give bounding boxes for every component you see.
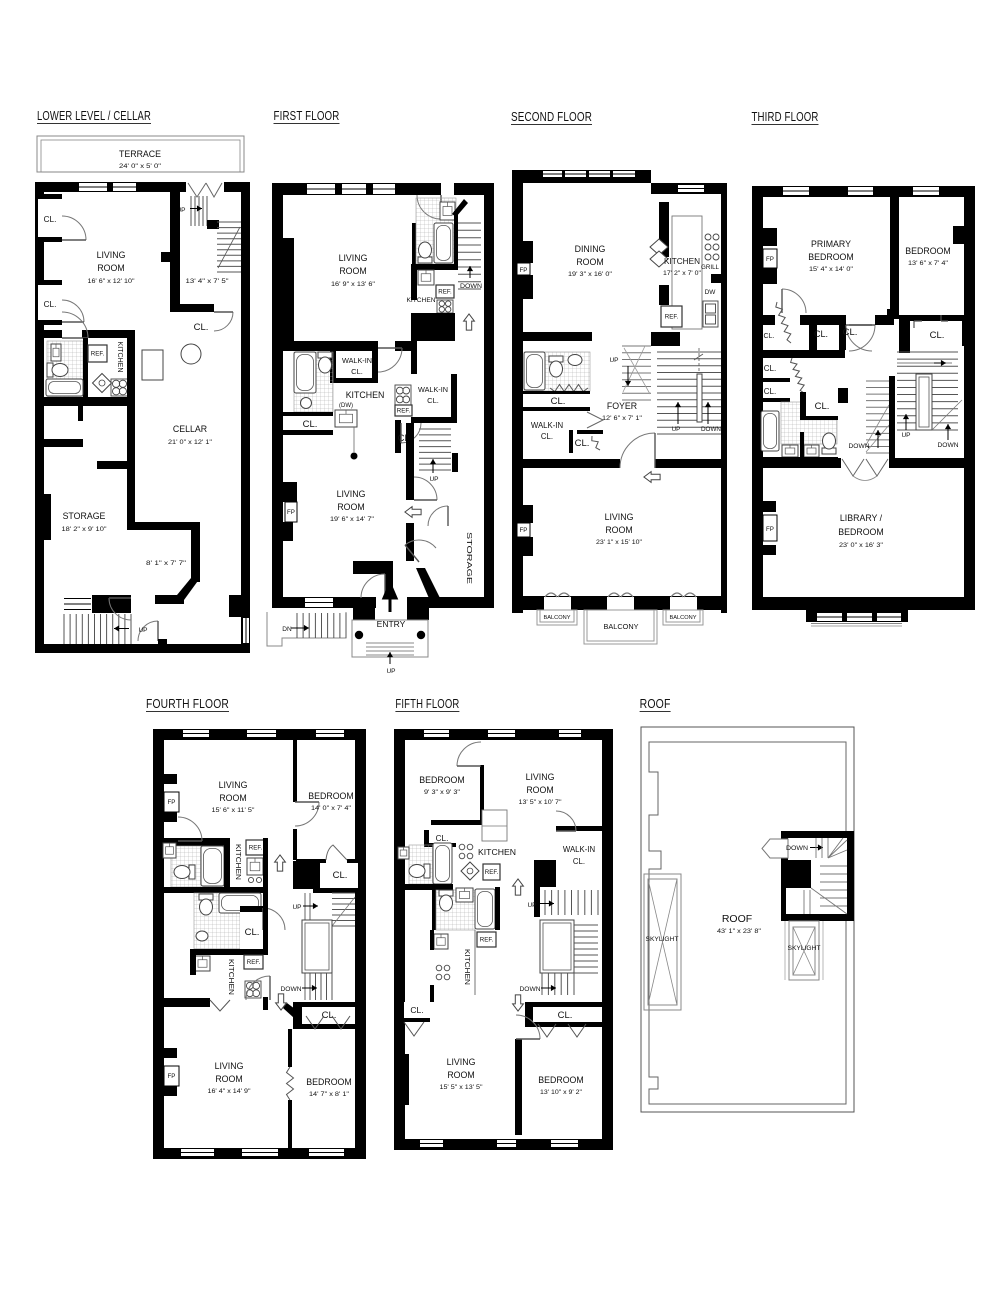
svg-text:13' 10" x 9' 2": 13' 10" x 9' 2" — [540, 1089, 582, 1096]
svg-text:CL.: CL. — [558, 1010, 573, 1021]
svg-text:FOYER: FOYER — [607, 401, 637, 411]
svg-text:CL.: CL. — [410, 1005, 423, 1015]
svg-text:UP: UP — [138, 627, 147, 634]
svg-text:UP: UP — [292, 904, 301, 911]
svg-text:BEDROOM: BEDROOM — [419, 775, 464, 785]
svg-text:13' 5" x 10' 7": 13' 5" x 10' 7" — [519, 799, 562, 806]
svg-text:ROOM: ROOM — [526, 785, 553, 795]
svg-text:CL.: CL. — [245, 927, 260, 938]
svg-text:CL.: CL. — [44, 300, 57, 309]
svg-text:CL.: CL. — [303, 419, 318, 430]
svg-text:KITCHEN: KITCHEN — [478, 847, 516, 857]
svg-text:FP: FP — [287, 509, 295, 516]
svg-text:CL.: CL. — [427, 396, 439, 405]
svg-text:BALCONY: BALCONY — [544, 615, 571, 621]
svg-text:LIVING: LIVING — [605, 512, 634, 522]
svg-text:REF.: REF. — [397, 408, 411, 415]
svg-text:FOURTH FLOOR: FOURTH FLOOR — [146, 697, 229, 711]
svg-text:DW: DW — [705, 289, 717, 296]
svg-text:UP: UP — [672, 426, 681, 433]
svg-text:GRILL: GRILL — [701, 265, 720, 271]
svg-text:DOWN: DOWN — [520, 986, 541, 993]
svg-text:BEDROOM: BEDROOM — [308, 791, 353, 801]
svg-text:THIRD FLOOR: THIRD FLOOR — [752, 110, 819, 124]
svg-text:13' 6" x 7' 4": 13' 6" x 7' 4" — [908, 260, 948, 267]
svg-text:ROOM: ROOM — [97, 263, 124, 273]
svg-text:FP: FP — [766, 526, 774, 533]
svg-text:STORAGE: STORAGE — [465, 532, 474, 584]
svg-text:CELLAR: CELLAR — [173, 424, 207, 434]
svg-text:CL.: CL. — [541, 432, 553, 441]
svg-text:FP: FP — [168, 1073, 176, 1080]
svg-text:FP: FP — [520, 527, 528, 534]
svg-text:23' 1" x 15' 10": 23' 1" x 15' 10" — [596, 539, 642, 546]
svg-text:ROOM: ROOM — [219, 793, 246, 803]
svg-text:CL.: CL. — [551, 396, 566, 407]
svg-text:LIVING: LIVING — [447, 1057, 476, 1067]
svg-text:16' 6" x 12' 10": 16' 6" x 12' 10" — [88, 278, 135, 285]
svg-text:ROOM: ROOM — [447, 1070, 474, 1080]
svg-text:CL.: CL. — [764, 333, 775, 340]
svg-text:KITCHEN: KITCHEN — [346, 390, 385, 400]
svg-text:CL.: CL. — [843, 327, 858, 338]
svg-text:REF.: REF. — [665, 314, 679, 321]
svg-text:LIVING: LIVING — [97, 250, 126, 260]
svg-text:UP: UP — [386, 668, 395, 675]
svg-text:WALK-IN: WALK-IN — [531, 421, 563, 430]
svg-text:ROOM: ROOM — [215, 1074, 242, 1084]
svg-text:KITCHEN: KITCHEN — [227, 959, 236, 995]
svg-text:KITCHEN: KITCHEN — [463, 949, 472, 985]
svg-text:PRIMARY: PRIMARY — [811, 239, 851, 249]
svg-text:BEDROOM: BEDROOM — [538, 1075, 583, 1085]
svg-text:REF.: REF. — [438, 289, 452, 296]
svg-text:15' 4" x 14' 0": 15' 4" x 14' 0" — [809, 266, 853, 273]
svg-text:LIVING: LIVING — [215, 1061, 244, 1071]
svg-text:DOWN: DOWN — [460, 283, 482, 290]
svg-text:BEDROOM: BEDROOM — [838, 527, 883, 537]
svg-text:(DW): (DW) — [339, 403, 353, 409]
svg-text:TERRACE: TERRACE — [119, 149, 161, 159]
svg-text:CL.: CL. — [815, 401, 830, 412]
svg-text:FIRST FLOOR: FIRST FLOOR — [274, 109, 340, 123]
svg-text:DOWN: DOWN — [281, 986, 302, 993]
svg-text:ROOM: ROOM — [576, 257, 603, 267]
svg-text:CL.: CL. — [436, 834, 449, 843]
svg-text:19' 6" x 14' 7": 19' 6" x 14' 7" — [330, 516, 374, 523]
svg-text:LIVING: LIVING — [339, 253, 368, 263]
svg-text:21' 0" x 12' 1": 21' 0" x 12' 1" — [168, 439, 212, 446]
svg-text:UP: UP — [901, 432, 910, 439]
svg-text:LIBRARY /: LIBRARY / — [840, 513, 883, 523]
svg-text:ROOF: ROOF — [722, 913, 752, 925]
svg-text:WALK-IN: WALK-IN — [342, 356, 372, 365]
svg-text:STORAGE: STORAGE — [63, 511, 106, 521]
svg-text:REF.: REF. — [249, 845, 263, 852]
svg-text:REF.: REF. — [485, 869, 499, 876]
svg-text:43' 1" x 23' 8": 43' 1" x 23' 8" — [717, 928, 761, 935]
svg-text:19' 3" x 16' 0": 19' 3" x 16' 0" — [568, 271, 612, 278]
svg-text:CL.: CL. — [351, 367, 363, 376]
svg-text:UP: UP — [429, 476, 438, 483]
svg-text:24' 0" x 5' 0": 24' 0" x 5' 0" — [119, 163, 161, 170]
svg-text:BEDROOM: BEDROOM — [808, 252, 853, 262]
svg-text:8' 1" x 7' 7": 8' 1" x 7' 7" — [146, 560, 186, 567]
svg-text:CL.: CL. — [194, 322, 209, 333]
svg-text:LIVING: LIVING — [219, 780, 248, 790]
svg-text:BEDROOM: BEDROOM — [905, 246, 950, 256]
svg-text:ROOM: ROOM — [605, 525, 632, 535]
svg-text:WALK-IN: WALK-IN — [563, 845, 595, 854]
svg-text:ROOF: ROOF — [640, 697, 671, 711]
svg-text:BALCONY: BALCONY — [670, 615, 697, 621]
svg-text:CL.: CL. — [764, 387, 776, 396]
svg-text:CL.: CL. — [930, 330, 945, 341]
svg-text:16' 9" x 13' 6": 16' 9" x 13' 6" — [331, 281, 375, 288]
svg-text:SKYLIGHT: SKYLIGHT — [788, 945, 821, 952]
svg-text:13' 4" x 7' 5": 13' 4" x 7' 5" — [186, 278, 229, 285]
svg-text:LIVING: LIVING — [337, 489, 366, 499]
svg-text:LIVING: LIVING — [526, 772, 555, 782]
svg-text:15' 5" x 13' 5": 15' 5" x 13' 5" — [440, 1084, 483, 1091]
svg-text:BALCONY: BALCONY — [604, 622, 639, 631]
svg-text:SKYLIGHT: SKYLIGHT — [646, 936, 679, 943]
svg-text:LOWER LEVEL / CELLAR: LOWER LEVEL / CELLAR — [37, 109, 151, 123]
svg-text:KITCHEN: KITCHEN — [234, 844, 243, 880]
svg-text:CL.: CL. — [575, 438, 590, 449]
svg-text:KITCHEN: KITCHEN — [407, 297, 436, 304]
svg-text:DOWN: DOWN — [701, 426, 721, 433]
svg-text:16' 4" x 14' 9": 16' 4" x 14' 9" — [208, 1088, 251, 1095]
svg-text:12' 6" x 7' 1": 12' 6" x 7' 1" — [602, 415, 642, 422]
svg-text:CL.: CL. — [764, 364, 776, 373]
svg-text:CL.: CL. — [44, 215, 57, 224]
svg-text:REF.: REF. — [247, 959, 261, 966]
svg-text:WALK-IN: WALK-IN — [418, 385, 448, 394]
svg-text:UP: UP — [527, 902, 536, 909]
svg-text:FP: FP — [168, 799, 176, 806]
svg-text:17' 2" x 7' 0": 17' 2" x 7' 0" — [663, 270, 701, 277]
svg-text:KITCHEN: KITCHEN — [664, 256, 700, 266]
svg-text:SECOND FLOOR: SECOND FLOOR — [511, 110, 592, 124]
svg-text:CL.: CL. — [333, 870, 348, 881]
svg-text:15' 6" x 11' 5": 15' 6" x 11' 5" — [212, 807, 255, 814]
svg-text:23' 0" x 16' 3": 23' 0" x 16' 3" — [839, 542, 883, 549]
svg-text:18' 2" x 9' 10": 18' 2" x 9' 10" — [62, 526, 107, 533]
svg-text:ROOM: ROOM — [339, 266, 366, 276]
svg-text:FP: FP — [520, 267, 528, 274]
svg-text:CL.: CL. — [573, 857, 585, 866]
svg-text:DOWN: DOWN — [849, 443, 870, 450]
svg-text:REF.: REF. — [91, 351, 105, 358]
svg-text:DN: DN — [282, 626, 292, 633]
svg-text:KITCHEN: KITCHEN — [116, 342, 125, 373]
svg-text:ROOM: ROOM — [337, 502, 364, 512]
svg-text:14' 0" x 7' 4": 14' 0" x 7' 4" — [311, 805, 351, 812]
svg-text:UP: UP — [609, 357, 618, 364]
svg-text:DOWN: DOWN — [938, 442, 959, 449]
svg-text:14' 7" x 8' 1": 14' 7" x 8' 1" — [309, 1091, 349, 1098]
svg-text:DOWN: DOWN — [786, 845, 808, 852]
svg-text:REF.: REF. — [480, 937, 494, 944]
svg-text:FP: FP — [766, 256, 774, 263]
svg-text:DINING: DINING — [575, 244, 606, 254]
svg-text:FIFTH FLOOR: FIFTH FLOOR — [395, 697, 459, 711]
svg-text:CL.: CL. — [814, 329, 828, 339]
svg-text:9' 3" x 9' 3": 9' 3" x 9' 3" — [424, 789, 460, 796]
svg-text:BEDROOM: BEDROOM — [306, 1077, 351, 1087]
